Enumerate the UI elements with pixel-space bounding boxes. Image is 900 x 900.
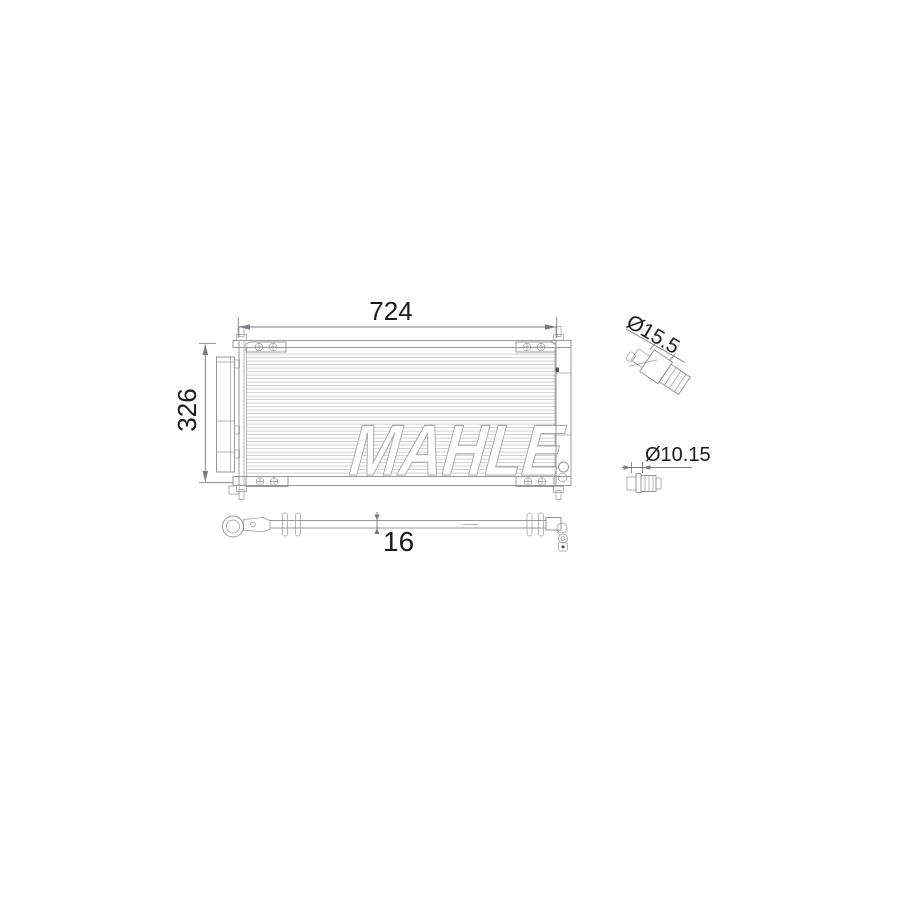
fitting-outlet: Ø10.15 [622, 444, 711, 493]
screw-icon [269, 343, 277, 351]
screw-icon [524, 478, 532, 486]
screw-icon [523, 343, 531, 351]
drier-end-inner [227, 520, 240, 533]
dimension-depth: 16 [374, 512, 414, 557]
fitting-outlet-label: Ø10.15 [645, 444, 711, 466]
side-left-fitting [244, 518, 271, 532]
mahle-watermark: MAHLE [346, 411, 568, 491]
screw-icon [256, 478, 264, 486]
side-bracket-tab [527, 513, 532, 536]
receiver-drier [217, 357, 240, 472]
side-right-ring [559, 534, 568, 543]
side-bracket-tab [539, 513, 544, 536]
screw-icon [255, 343, 263, 351]
technical-drawing-canvas: MAHLE [0, 0, 900, 900]
dimension-width: 724 [238, 296, 556, 338]
side-left-hole [251, 522, 256, 527]
side-right-dot [561, 545, 564, 548]
screw-icon [537, 343, 545, 351]
dimension-height: 326 [172, 343, 233, 482]
fitting-inlet: Ø15.5 [623, 310, 692, 398]
side-right-ring-hole [561, 537, 565, 541]
side-right-port [557, 523, 567, 533]
dimension-width-label: 724 [369, 296, 412, 326]
tank-weld-mark [556, 368, 560, 373]
front-view: MAHLE [217, 327, 572, 500]
drawing-page: MAHLE [0, 0, 900, 900]
side-right-end-block [546, 518, 561, 531]
outlet-fitting-body [627, 474, 661, 493]
side-bracket-tab [296, 513, 301, 536]
dimension-depth-label: 16 [383, 526, 414, 557]
screw-icon [538, 478, 546, 486]
side-bracket-tab [283, 513, 288, 536]
dimension-height-label: 326 [172, 388, 202, 431]
screw-icon [270, 478, 278, 486]
drier-end-circle [223, 516, 244, 537]
